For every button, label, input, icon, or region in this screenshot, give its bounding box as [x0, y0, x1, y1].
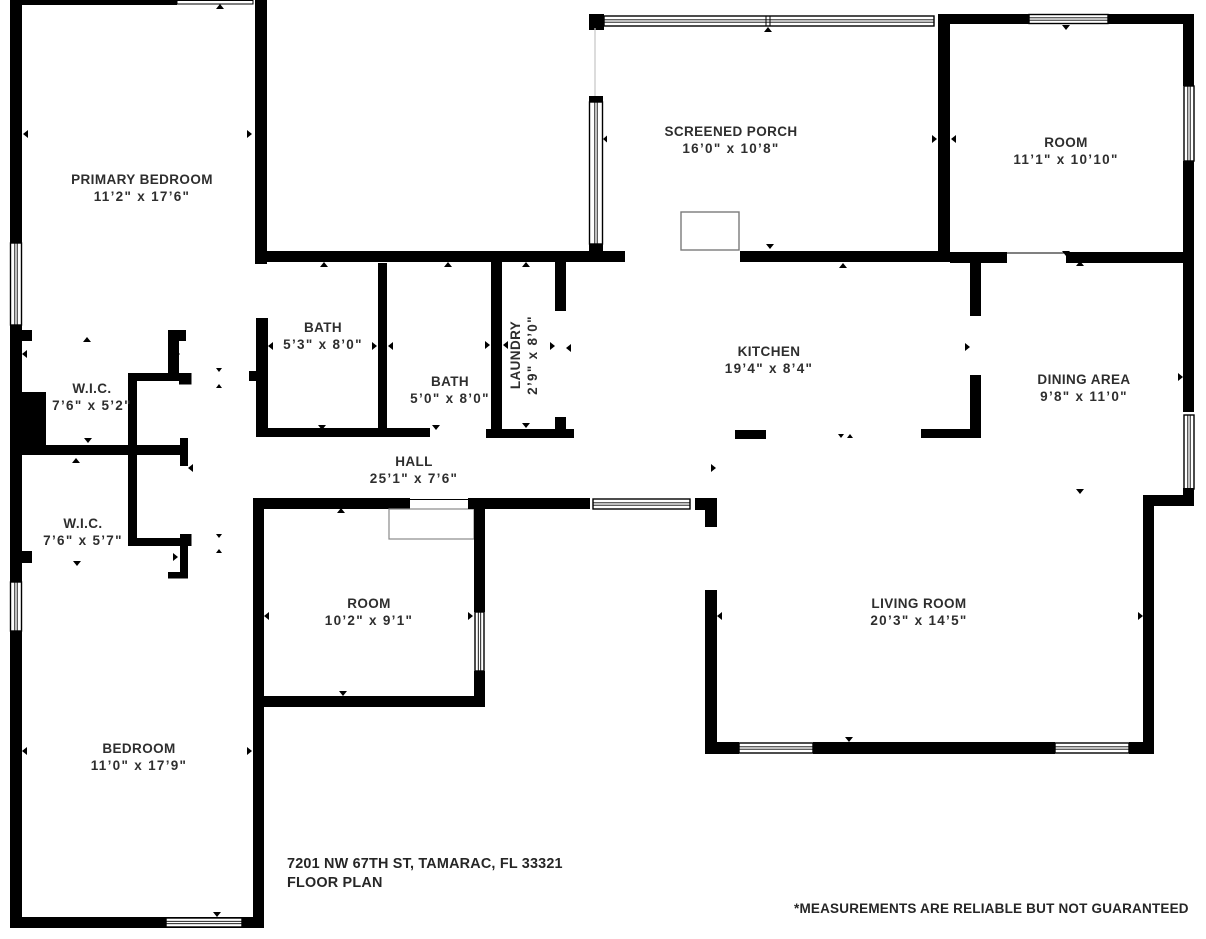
svg-text:FLOOR PLAN: FLOOR PLAN [287, 875, 383, 891]
svg-text:*MEASUREMENTS ARE RELIABLE BUT: *MEASUREMENTS ARE RELIABLE BUT NOT GUARA… [794, 901, 1189, 916]
svg-text:7201 NW 67TH ST, TAMARAC, FL 3: 7201 NW 67TH ST, TAMARAC, FL 33321 [287, 856, 563, 872]
